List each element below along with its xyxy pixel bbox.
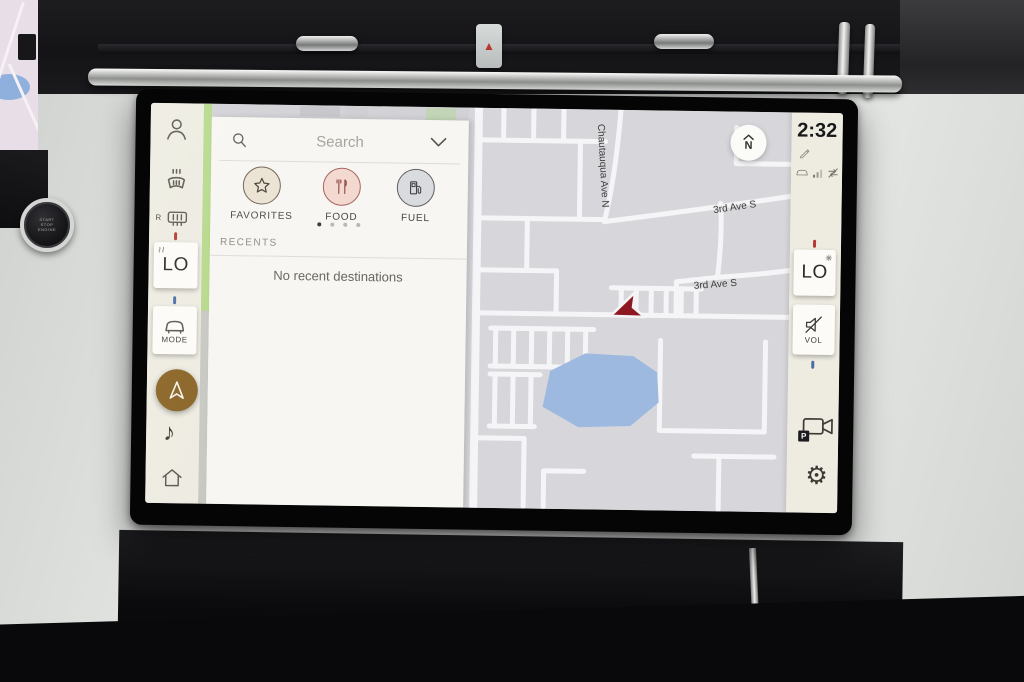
map-building-patch bbox=[300, 106, 340, 117]
volume-button[interactable]: VOL bbox=[792, 304, 835, 355]
fuel-circle bbox=[397, 169, 436, 208]
search-panel: Search FAVORITES bbox=[206, 117, 469, 508]
engine-start-stop-button[interactable]: START STOP ENGINE bbox=[20, 198, 74, 252]
chevron-down-icon[interactable] bbox=[429, 136, 447, 148]
fan-icon bbox=[825, 254, 833, 262]
drive-mode-button[interactable]: MODE bbox=[152, 306, 197, 355]
fuel-pump-icon bbox=[407, 179, 425, 197]
recents-empty-message: No recent destinations bbox=[209, 267, 466, 286]
driver-temperature-value: LO bbox=[162, 254, 189, 276]
map-pond bbox=[542, 353, 659, 429]
navigation-app-button[interactable] bbox=[155, 369, 198, 412]
home-button[interactable] bbox=[159, 465, 184, 490]
car-status-icon bbox=[795, 166, 809, 177]
heat-tick bbox=[174, 232, 177, 240]
map-building-patch bbox=[346, 107, 368, 117]
category-favorites[interactable]: FAVORITES bbox=[225, 166, 298, 222]
seat-heater-icon bbox=[157, 246, 166, 255]
category-fuel[interactable]: FUEL bbox=[379, 168, 452, 224]
fuel-label: FUEL bbox=[401, 213, 430, 224]
drive-mode-label: MODE bbox=[161, 335, 188, 344]
hazard-lights-button[interactable]: ▲ bbox=[476, 24, 502, 68]
connectivity-status bbox=[795, 166, 839, 178]
engine-label: ENGINE bbox=[38, 228, 56, 232]
parking-camera-button[interactable]: P bbox=[801, 413, 835, 442]
vent-handle[interactable] bbox=[654, 34, 714, 49]
page-dot bbox=[317, 222, 321, 226]
page-dot bbox=[343, 223, 347, 227]
vent-slat bbox=[98, 44, 958, 54]
right-vent-panel bbox=[900, 0, 1024, 94]
vehicle-position-marker bbox=[606, 290, 647, 331]
passenger-temperature-button[interactable]: LO bbox=[793, 249, 836, 296]
app-sidebar: R LO bbox=[145, 103, 204, 504]
data-off-icon bbox=[827, 168, 839, 178]
vent-handle[interactable] bbox=[296, 36, 358, 51]
map-park-patch bbox=[426, 108, 456, 120]
cold-tick bbox=[811, 361, 814, 369]
driver-temperature-button[interactable]: LO bbox=[153, 242, 198, 289]
passenger-temperature-value: LO bbox=[801, 262, 828, 284]
clock: 2:32 bbox=[792, 119, 843, 143]
signal-bars-icon bbox=[812, 168, 824, 178]
front-defrost-icon[interactable] bbox=[163, 166, 190, 193]
navigation-arrow-icon bbox=[166, 379, 188, 401]
category-food[interactable]: FOOD bbox=[305, 167, 378, 223]
instrument-cluster-peek bbox=[0, 0, 38, 168]
heat-tick bbox=[813, 240, 816, 248]
food-label: FOOD bbox=[325, 211, 357, 222]
settings-gear-button[interactable]: ⚙ bbox=[796, 461, 836, 492]
infotainment-screen: Chautauqua Ave N US-19 N 3rd Ave S 3rd A… bbox=[130, 89, 858, 536]
warning-triangle-icon: ▲ bbox=[483, 40, 495, 52]
favorites-label: FAVORITES bbox=[230, 210, 293, 222]
volume-label: VOL bbox=[805, 336, 823, 345]
star-icon bbox=[252, 175, 272, 195]
rear-defrost-prefix: R bbox=[155, 213, 161, 222]
cold-tick bbox=[173, 296, 176, 304]
recents-divider bbox=[210, 255, 467, 260]
status-rail: 2:32 bbox=[786, 112, 843, 513]
recents-header: RECENTS bbox=[220, 237, 278, 249]
route-edit-icon bbox=[798, 146, 811, 159]
search-bar[interactable]: Search bbox=[211, 121, 469, 163]
parking-badge: P bbox=[798, 431, 809, 442]
media-app-button[interactable]: ♪ bbox=[163, 421, 175, 445]
cluster-map-road bbox=[8, 63, 38, 146]
page-dot bbox=[356, 223, 360, 227]
cluster-bezel-fragment bbox=[18, 34, 36, 60]
rear-defrost-icon[interactable] bbox=[165, 207, 189, 229]
mute-speaker-icon bbox=[803, 315, 825, 335]
dining-icon bbox=[333, 178, 351, 196]
food-circle bbox=[323, 167, 362, 206]
favorites-circle bbox=[243, 166, 282, 205]
page-dot bbox=[330, 223, 334, 227]
car-icon bbox=[162, 316, 188, 334]
infotainment-display: Chautauqua Ave N US-19 N 3rd Ave S 3rd A… bbox=[145, 103, 843, 513]
dashboard-photo: ▲ START STOP ENGINE bbox=[0, 0, 1024, 682]
compass-north-label: N bbox=[744, 141, 752, 152]
profile-icon[interactable] bbox=[163, 116, 189, 142]
